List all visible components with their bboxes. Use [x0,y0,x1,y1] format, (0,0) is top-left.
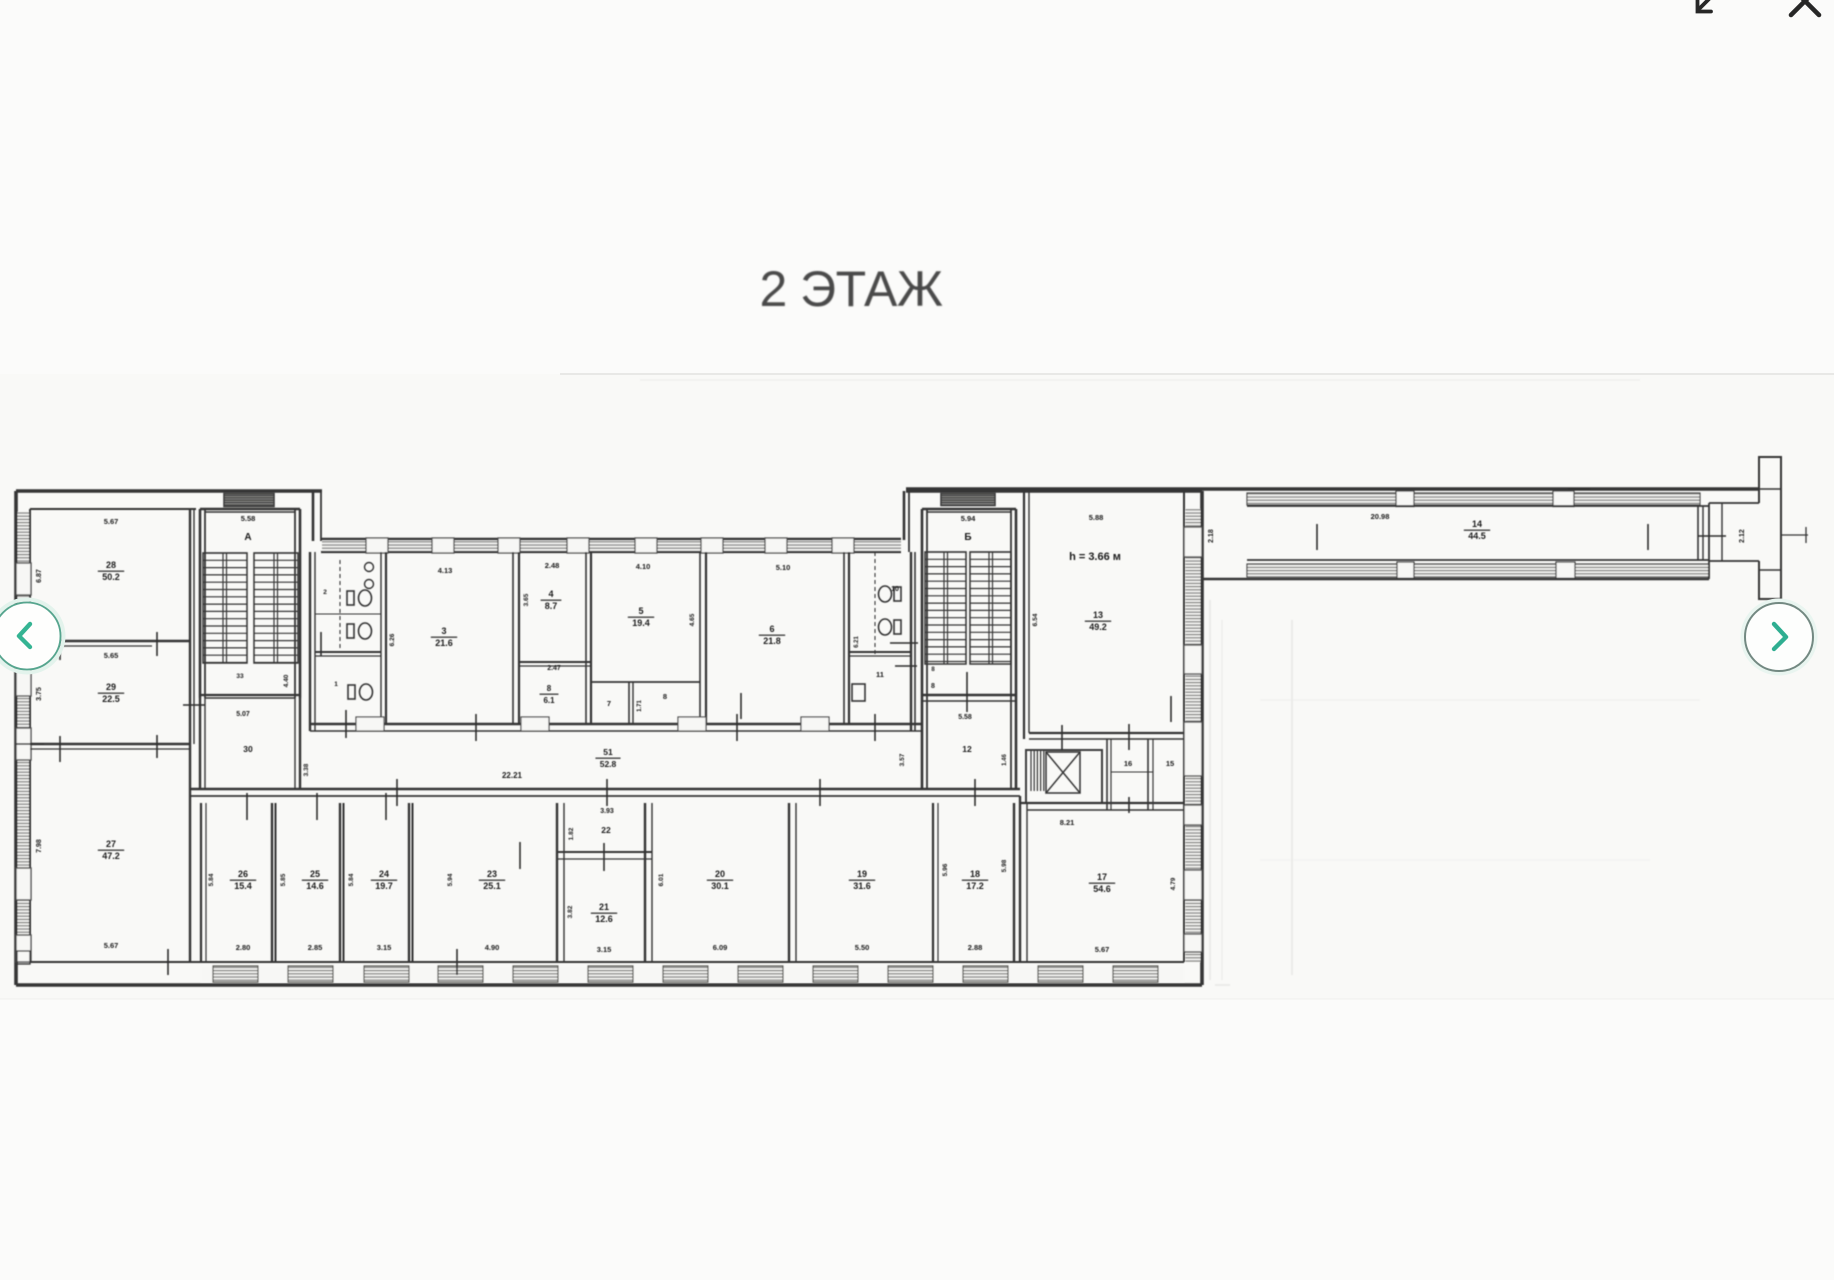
svg-text:6.26: 6.26 [389,633,396,646]
svg-text:2.48: 2.48 [545,561,560,570]
svg-text:27: 27 [106,839,116,849]
svg-text:19.7: 19.7 [375,881,393,891]
svg-text:18: 18 [970,869,980,879]
svg-text:2.85: 2.85 [308,943,323,952]
svg-text:3.75: 3.75 [36,687,43,701]
svg-text:2.47: 2.47 [547,665,561,672]
svg-text:2.80: 2.80 [236,943,251,952]
svg-text:5.96: 5.96 [942,863,949,876]
svg-text:5.67: 5.67 [1095,945,1110,954]
svg-text:3.82: 3.82 [567,905,574,918]
svg-text:33: 33 [236,673,244,680]
svg-text:4.65: 4.65 [689,613,696,626]
svg-text:5.88: 5.88 [1089,513,1104,522]
svg-text:14: 14 [1472,519,1482,529]
svg-text:3.15: 3.15 [377,943,392,952]
svg-text:2.88: 2.88 [968,943,983,952]
svg-text:6.1: 6.1 [543,696,555,705]
svg-text:2.18: 2.18 [1208,529,1215,543]
svg-text:5.50: 5.50 [855,943,870,952]
svg-text:22.21: 22.21 [502,771,523,780]
svg-text:4.79: 4.79 [1170,877,1177,890]
svg-text:h = 3.66 м: h = 3.66 м [1069,551,1121,563]
svg-text:1.82: 1.82 [568,827,575,840]
svg-text:11: 11 [876,670,884,679]
svg-text:3.65: 3.65 [523,593,530,606]
svg-text:5.67: 5.67 [104,941,119,950]
svg-text:3.38: 3.38 [303,763,310,776]
svg-text:6.21: 6.21 [854,636,860,648]
svg-text:51: 51 [603,747,613,757]
svg-text:25.1: 25.1 [483,881,501,891]
svg-text:19: 19 [857,869,867,879]
svg-text:1.71: 1.71 [637,700,643,712]
svg-text:13: 13 [1093,610,1103,620]
svg-text:8: 8 [931,683,935,690]
svg-text:2: 2 [323,589,327,596]
svg-text:30.1: 30.1 [711,881,729,891]
svg-text:44.5: 44.5 [1468,531,1486,541]
svg-text:1: 1 [334,681,338,688]
svg-text:20.98: 20.98 [1371,512,1390,521]
svg-text:4.10: 4.10 [636,562,651,571]
svg-text:4.90: 4.90 [485,943,500,952]
svg-text:3.57: 3.57 [899,753,906,766]
svg-text:3: 3 [441,626,446,636]
svg-text:6.09: 6.09 [713,943,728,952]
svg-text:17: 17 [1097,872,1107,882]
svg-text:19.4: 19.4 [632,618,650,628]
svg-text:8: 8 [663,692,667,701]
svg-text:22.5: 22.5 [102,694,120,704]
svg-text:5.84: 5.84 [208,873,215,886]
svg-text:3.93: 3.93 [600,808,614,815]
svg-text:8.21: 8.21 [1060,818,1075,827]
svg-text:5.94: 5.94 [447,873,454,886]
svg-text:5: 5 [638,606,643,616]
svg-text:22: 22 [601,825,611,835]
svg-text:8: 8 [547,684,552,693]
svg-text:31.6: 31.6 [853,881,871,891]
svg-text:14.6: 14.6 [306,881,324,891]
svg-text:3.15: 3.15 [597,945,612,954]
svg-text:6.87: 6.87 [36,569,43,583]
svg-text:Б: Б [964,532,971,543]
svg-text:12.6: 12.6 [595,914,613,924]
svg-text:52.8: 52.8 [600,759,617,769]
svg-text:4: 4 [548,589,553,599]
svg-text:6.54: 6.54 [1032,613,1039,626]
svg-text:47.2: 47.2 [102,851,120,861]
svg-text:А: А [244,532,251,543]
svg-text:25: 25 [310,869,320,879]
svg-text:7: 7 [607,699,611,708]
svg-text:5.67: 5.67 [104,517,119,526]
svg-text:2 ЭТАЖ: 2 ЭТАЖ [759,261,942,317]
svg-text:5.85: 5.85 [280,873,287,886]
svg-text:5.58: 5.58 [241,514,256,523]
svg-text:17.2: 17.2 [966,881,984,891]
svg-text:5.98: 5.98 [1001,859,1008,872]
svg-text:5.94: 5.94 [961,514,976,523]
svg-text:49.2: 49.2 [1089,622,1107,632]
svg-text:21: 21 [599,902,609,912]
svg-text:5.58: 5.58 [958,714,972,721]
svg-text:5.65: 5.65 [104,651,119,660]
svg-text:21.6: 21.6 [435,638,453,648]
svg-text:16: 16 [1124,759,1132,768]
svg-text:15: 15 [1166,759,1174,768]
svg-text:28: 28 [106,560,116,570]
svg-text:24: 24 [379,869,389,879]
svg-text:30: 30 [243,744,253,754]
svg-text:8.7: 8.7 [545,601,558,611]
svg-text:54.6: 54.6 [1093,884,1111,894]
svg-text:6.01: 6.01 [658,873,665,886]
svg-text:26: 26 [238,869,248,879]
svg-text:4.13: 4.13 [438,566,453,575]
svg-text:5.10: 5.10 [776,563,791,572]
svg-text:15.4: 15.4 [234,881,252,891]
svg-text:5.84: 5.84 [348,873,355,886]
svg-text:5.07: 5.07 [236,711,250,718]
svg-text:2.12: 2.12 [1739,529,1746,543]
svg-text:6: 6 [769,624,774,634]
svg-text:10: 10 [891,586,899,593]
svg-text:23: 23 [487,869,497,879]
svg-text:12: 12 [962,744,972,754]
svg-text:21.8: 21.8 [763,636,781,646]
svg-text:4.40: 4.40 [283,674,290,687]
svg-text:7.98: 7.98 [36,839,43,853]
svg-text:1.46: 1.46 [1002,754,1008,766]
svg-text:29: 29 [106,682,116,692]
svg-text:50.2: 50.2 [102,572,120,582]
svg-text:20: 20 [715,869,725,879]
